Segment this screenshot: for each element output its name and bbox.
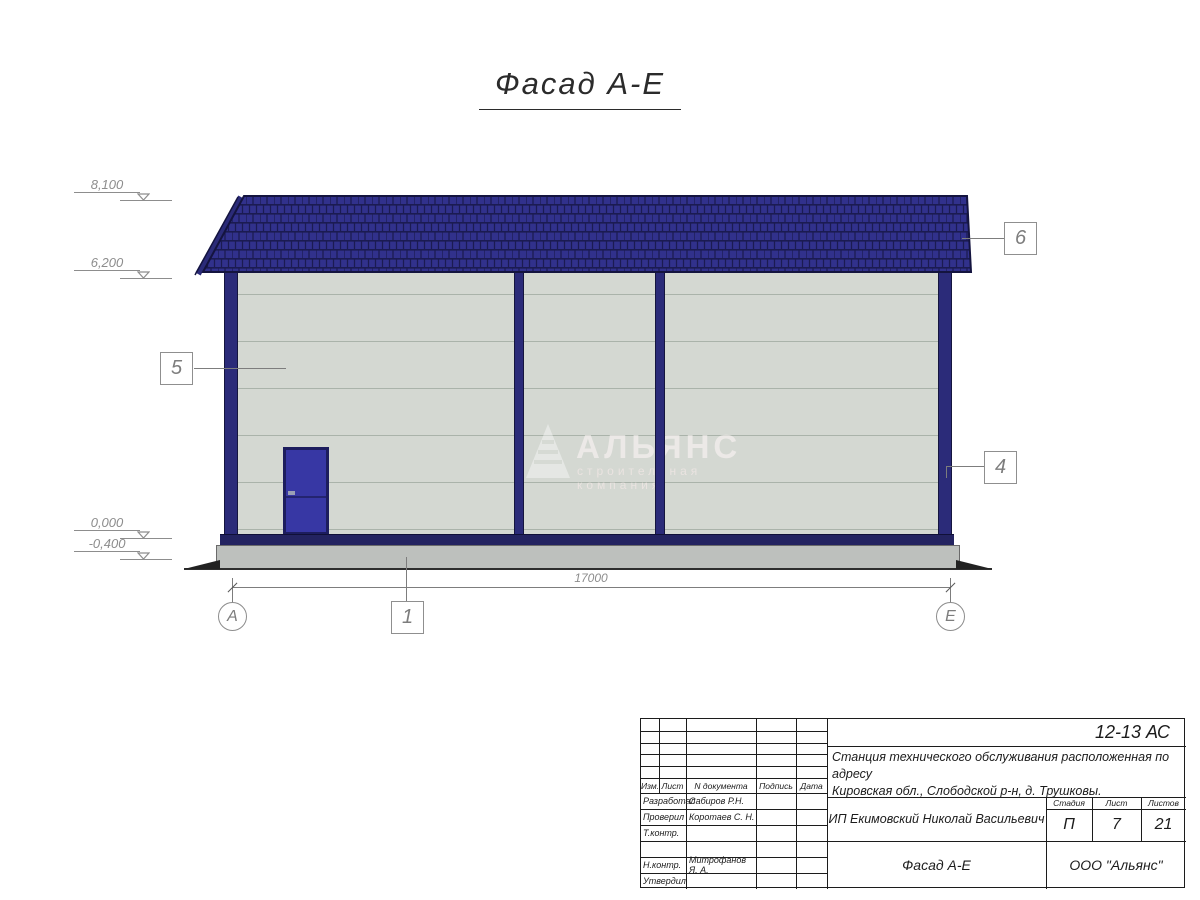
staff-name (689, 825, 756, 841)
callout-6: 6 (1004, 222, 1037, 255)
client-name: ИП Екимовский Николай Васильевич (827, 797, 1046, 841)
dimension-line (232, 587, 950, 588)
sheet-num-label: Лист (1092, 797, 1141, 809)
elevation-value: -0,400 (74, 536, 140, 551)
staff-role: Разработал (643, 793, 686, 809)
callout-number: 6 (1015, 227, 1026, 250)
project-description: Станция технического обслуживания распол… (827, 746, 1186, 797)
facade-wall (224, 273, 950, 535)
staff-name: Сабиров Р.Н. (689, 793, 756, 809)
elevation-mark-8100: 8,100 (74, 177, 174, 203)
document-number: 12-13 АС (827, 719, 1186, 746)
callout-number: 1 (402, 606, 413, 629)
door-handle-icon (288, 491, 295, 495)
callout-number: 4 (995, 456, 1006, 479)
stamp-header-izm: Изм. (641, 778, 659, 793)
watermark-pyramid-icon (524, 422, 572, 480)
axis-marker-e: Е (936, 602, 965, 631)
elevation-mark-minus-0400: -0,400 (74, 536, 174, 562)
staff-role: Проверил (643, 809, 686, 825)
watermark: АЛЬЯНС строительная компания (520, 420, 740, 482)
dimension-17000: 17000 (232, 571, 950, 585)
callout-5: 5 (160, 352, 193, 385)
drawing-sheet: Фасад А-Е АЛЬЯНС строительная компания (0, 0, 1200, 900)
entrance-door (283, 447, 329, 535)
axis-marker-a: А (218, 602, 247, 631)
company-name: ООО "Альянс" (1046, 841, 1186, 889)
ground-line (184, 568, 992, 570)
ground-wedge-right (956, 560, 992, 569)
callout-4: 4 (984, 451, 1017, 484)
title-block: Изм. Лист N документа Подпись Дата Разра… (640, 718, 1185, 888)
door-rail (286, 496, 326, 498)
stamp-header-sign: Подпись (756, 778, 796, 793)
elevation-value: 8,100 (74, 177, 140, 192)
project-line1: Станция технического обслуживания распол… (832, 749, 1186, 783)
drawing-title: Фасад А-Е (380, 66, 780, 110)
sheets-total-value: 21 (1141, 809, 1186, 841)
staff-name: Митрофанов Я. А. (689, 857, 756, 873)
sheet-num-value: 7 (1092, 809, 1141, 841)
sheets-total-label: Листов (1141, 797, 1186, 809)
staff-role (643, 841, 686, 857)
elevation-value: 0,000 (74, 515, 140, 530)
stage-value: П (1046, 809, 1092, 841)
stamp-header-doc: N документа (686, 778, 756, 793)
corner-column-left (224, 273, 238, 535)
stage-label: Стадия (1046, 797, 1092, 809)
callout-1: 1 (391, 601, 424, 634)
drawing-title-text: Фасад А-Е (479, 66, 681, 110)
stamp-sheet-title: Фасад А-Е (827, 841, 1046, 889)
ground-wedge-left (184, 560, 220, 569)
mullion-2 (655, 273, 665, 535)
staff-role: Н.контр. (643, 857, 686, 873)
roof-slope (203, 196, 971, 272)
staff-name: Коротаев С. Н. (689, 809, 756, 825)
stamp-header-list: Лист (659, 778, 686, 793)
elevation-value: 6,200 (74, 255, 140, 270)
staff-name (689, 873, 756, 889)
axis-label: А (227, 608, 238, 626)
axis-label: Е (945, 608, 956, 626)
staff-role: Утвердил (643, 873, 686, 889)
roof (190, 186, 985, 280)
elevation-mark-6200: 6,200 (74, 255, 174, 281)
mullion-1 (514, 273, 524, 535)
corner-column-right (938, 273, 952, 535)
stamp-header-date: Дата (796, 778, 827, 793)
callout-number: 5 (171, 357, 182, 380)
staff-role: Т.контр. (643, 825, 686, 841)
plinth (216, 545, 960, 570)
